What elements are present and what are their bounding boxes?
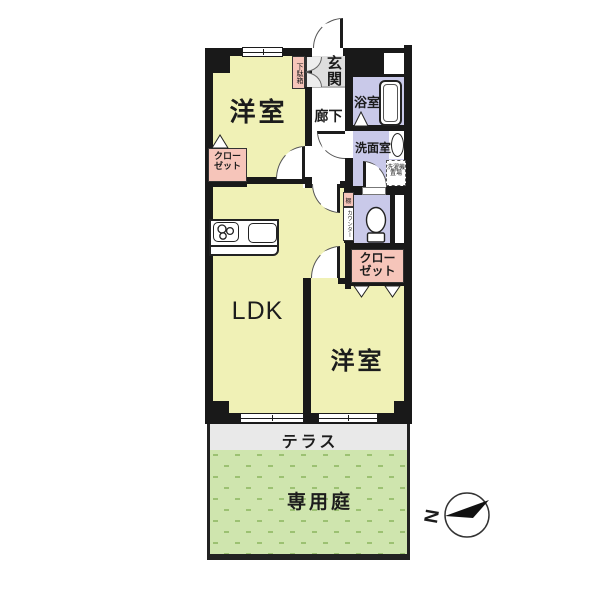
- counter-label: カウンター: [344, 208, 353, 240]
- toilet-door-gap: [362, 187, 386, 195]
- wall-bottom-rooms: [205, 413, 412, 424]
- wall-hall-washroom-lower: [345, 158, 353, 188]
- window-bedroom1-top: [242, 47, 283, 57]
- closet-r-door-icon-right: [384, 285, 401, 298]
- wall-under-closet-tl: [205, 182, 247, 187]
- bathtub-icon: [379, 80, 402, 126]
- ldk-label: LDK: [212, 297, 303, 326]
- closet-top-left-label: クローゼット: [208, 152, 247, 171]
- bath-door-icon: [353, 111, 369, 127]
- entrance-door-arc: [313, 18, 343, 48]
- wall-toilet-ps: [390, 195, 395, 243]
- toilet-icon: [363, 205, 389, 245]
- private-garden-label: 専用庭: [240, 487, 400, 514]
- entrance-label: 玄関: [323, 55, 344, 87]
- wall-ldk-bedroom2: [303, 278, 311, 413]
- laundry-label: 洗濯機置場: [385, 165, 407, 178]
- wall-nook-stub: [338, 278, 351, 284]
- hallway-label: 廊下: [312, 106, 345, 126]
- closet-r-door-icon-left: [353, 285, 370, 298]
- bedroom-bottom-right-label: 洋室: [311, 341, 404, 376]
- wall-bedroom1-right-stub: [305, 177, 312, 188]
- closet-tl-door-icon: [211, 134, 229, 149]
- pipe-space-top-right: [384, 53, 406, 74]
- north-arrow-icon: [440, 491, 496, 547]
- shelf-label: 棚: [343, 196, 354, 205]
- shoe-cabinet-label: 下駄箱: [293, 58, 304, 88]
- kitchen-sink-icon: [248, 223, 277, 243]
- terrace-label: テラス: [240, 428, 380, 452]
- bedroom1-door-gap: [305, 146, 312, 177]
- stove-burners-icon: [213, 222, 239, 242]
- bathroom-label: 浴室: [352, 92, 382, 111]
- pipe-space-strip: [395, 195, 404, 243]
- wall-genkan-bath: [345, 48, 353, 133]
- washroom-label: 洗面室: [351, 139, 395, 156]
- bedroom-top-left-label: 洋室: [212, 92, 305, 129]
- north-label: N: [417, 504, 442, 528]
- wall-right: [404, 45, 412, 415]
- kitchen-counter-front-line: [211, 245, 277, 247]
- window-bedroom2-bottom: [318, 413, 378, 423]
- floor-plan: クローゼット クローゼット 下駄箱 棚 カウンター: [0, 0, 600, 600]
- window-ldk-bottom: [240, 413, 304, 423]
- closet-right-label: クローゼット: [351, 252, 404, 278]
